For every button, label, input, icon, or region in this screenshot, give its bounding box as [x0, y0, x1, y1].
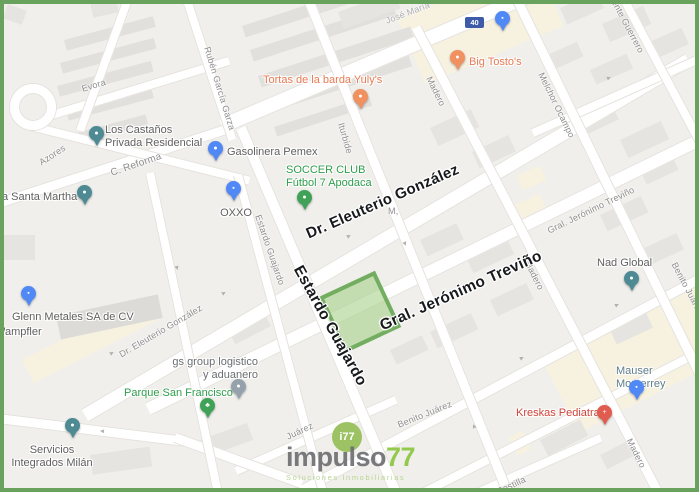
- briefcase-icon: ▪: [27, 290, 29, 297]
- poi-label-oxxo[interactable]: OXXO: [218, 207, 254, 220]
- roundabout: [10, 84, 56, 130]
- medical-cross-icon: +: [602, 409, 606, 416]
- place-pin-santa-martha[interactable]: ●: [77, 185, 92, 200]
- commercial-area: [516, 165, 546, 190]
- impulso77-logo: impulso77 Soluciones Inmobiliarias: [286, 444, 415, 482]
- poi-label-nad-global[interactable]: Nad Global: [597, 257, 652, 270]
- poi-label-gs-group[interactable]: gs group logistico y aduanero: [172, 356, 258, 382]
- poi-label-santa-martha[interactable]: a Santa Martha: [2, 191, 77, 204]
- restaurant-icon: ●: [455, 54, 459, 61]
- restaurant-icon: ●: [358, 93, 362, 100]
- sports-pin-soccer-club[interactable]: ●: [297, 190, 312, 205]
- building: [490, 283, 534, 316]
- one-way-arrow-icon: ▸: [518, 354, 525, 363]
- logo-text-accent: 77: [386, 442, 415, 472]
- street-label-iturbide: Iturbide: [336, 122, 354, 155]
- poi-label-tortas-de-la-barda[interactable]: Tortas de la barda Yuly's: [263, 74, 382, 87]
- residence-pin-los-castanos[interactable]: ●: [89, 126, 104, 141]
- place-icon: ●: [70, 422, 74, 429]
- highway-40-badge: 40: [465, 17, 484, 28]
- gas-station-pin-pemex[interactable]: ●: [208, 141, 223, 156]
- poi-label-parque-san-francisco[interactable]: Parque San Francisco: [124, 387, 233, 400]
- business-pin-gs-group[interactable]: ●: [231, 379, 246, 394]
- one-way-arrow-icon: ▸: [108, 349, 115, 358]
- one-way-arrow-icon: ▸: [173, 265, 182, 271]
- restaurant-pin-tortas[interactable]: ●: [353, 89, 368, 104]
- soccer-icon: ●: [302, 194, 306, 201]
- map-canvas[interactable]: ▸ ▸ ▸ ▸ ▸ ▸ ▸ ▸ ▸ ▸ 40 Evora Azores Rubé…: [0, 0, 699, 492]
- poi-label-kreskas-pediatra[interactable]: Kreskas Pediatra: [516, 407, 600, 420]
- fuel-icon: ●: [213, 145, 217, 152]
- park-pin-san-francisco[interactable]: ♣: [200, 398, 215, 413]
- place-icon: ●: [82, 189, 86, 196]
- store-pin-oxxo[interactable]: ▪: [226, 181, 241, 196]
- logo-text-main: impulso: [286, 442, 386, 472]
- building: [560, 0, 604, 24]
- tree-icon: ♣: [205, 402, 210, 409]
- poi-label-wampfler[interactable]: Wampfler: [0, 326, 42, 339]
- poi-label-gasolinera-pemex[interactable]: Gasolinera Pemex: [227, 146, 318, 159]
- place-icon: ●: [236, 383, 240, 390]
- restaurant-pin-big-tostos[interactable]: ●: [450, 50, 465, 65]
- place-pin-servicios-milan[interactable]: ●: [65, 418, 80, 433]
- poi-label-los-castanos[interactable]: Los Castaños Privada Residencial: [105, 124, 202, 150]
- one-way-arrow-icon: ▸: [345, 232, 352, 241]
- poi-label-glenn-metales[interactable]: Glenn Metales SA de CV: [12, 311, 134, 324]
- poi-label-big-tostos[interactable]: Big Tosto's: [469, 56, 522, 69]
- place-pin-nad-global[interactable]: ●: [624, 271, 639, 286]
- place-icon: ●: [629, 275, 633, 282]
- street-label-azores: Azores: [37, 143, 67, 167]
- store-pin-unlabeled[interactable]: ▪: [495, 11, 510, 26]
- building: [3, 4, 27, 25]
- logo-tagline: Soluciones Inmobiliarias: [286, 473, 415, 482]
- building: [390, 335, 428, 364]
- store-icon: ▪: [501, 15, 503, 22]
- one-way-arrow-icon: ▸: [613, 301, 620, 310]
- place-icon: ●: [94, 130, 98, 137]
- poi-label-servicios-integrados-milan[interactable]: Servicios Integrados Milán: [8, 444, 96, 470]
- building: [0, 235, 35, 260]
- building: [90, 0, 119, 18]
- business-pin-glenn-metales[interactable]: ▪: [21, 286, 36, 301]
- hospital-pin-kreskas[interactable]: +: [597, 405, 612, 420]
- store-icon: ▪: [232, 185, 234, 192]
- one-way-arrow-icon: ▸: [220, 289, 227, 298]
- building: [90, 447, 152, 475]
- briefcase-icon: ▪: [635, 384, 637, 391]
- poi-label-soccer-club[interactable]: SOCCER CLUB Fútbol 7 Apodaca: [286, 164, 372, 190]
- business-pin-mauser[interactable]: ▪: [629, 380, 644, 395]
